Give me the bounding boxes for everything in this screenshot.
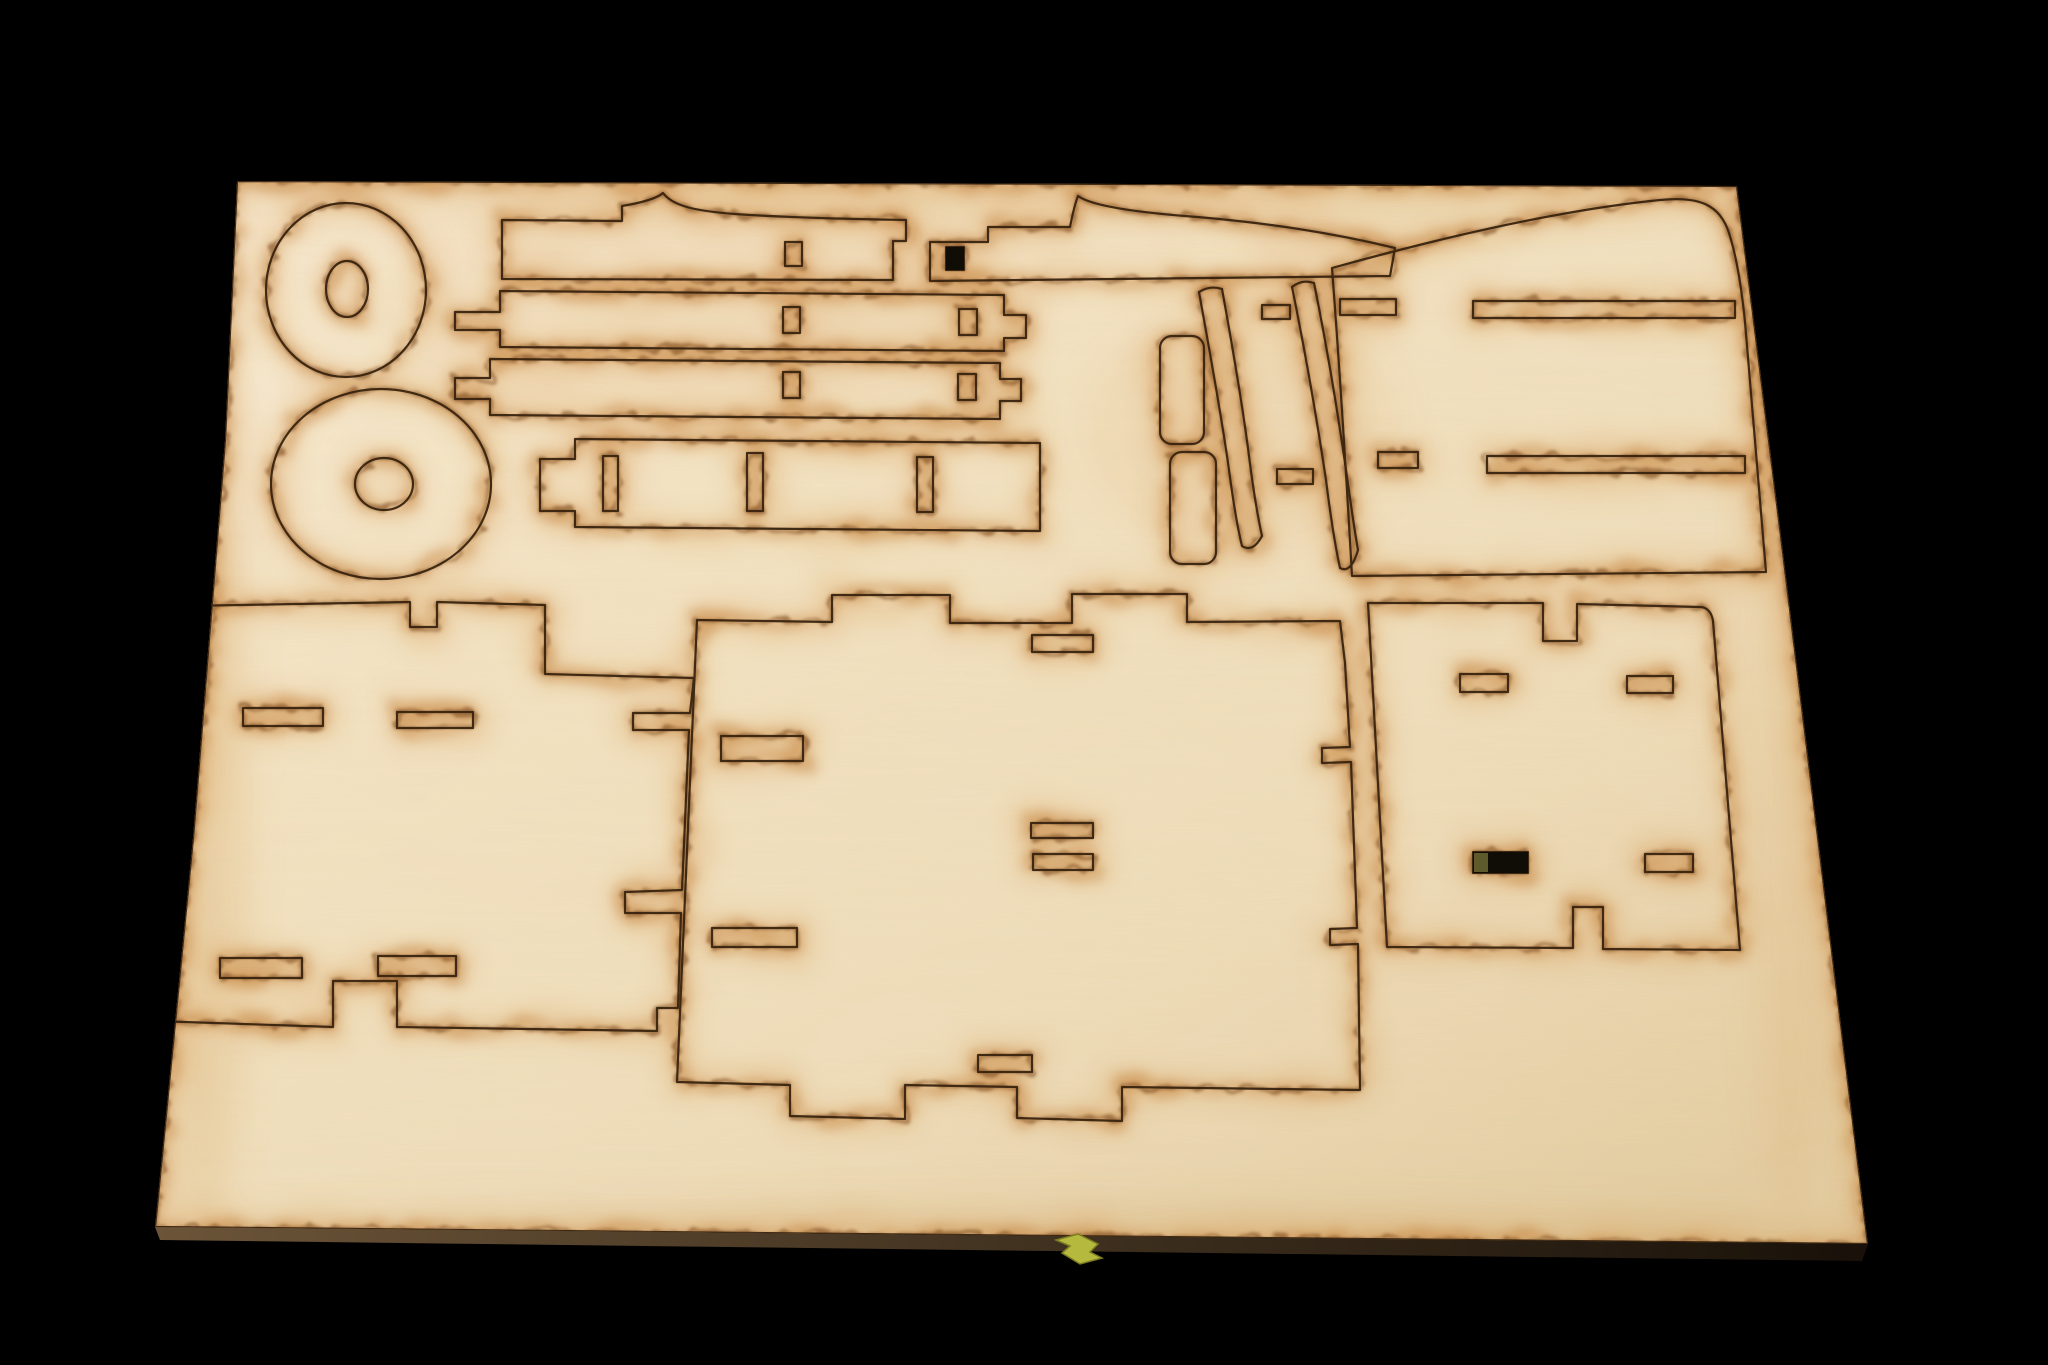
rail-hole xyxy=(946,247,964,270)
panel-hole-olive-glint xyxy=(1474,853,1488,872)
plywood-sheet xyxy=(120,140,1920,1290)
laser-cut-sheet-photo: Photograph of a laser-cut plywood sheet … xyxy=(0,0,2048,1365)
photo-canvas: Photograph of a laser-cut plywood sheet … xyxy=(0,0,2048,1365)
